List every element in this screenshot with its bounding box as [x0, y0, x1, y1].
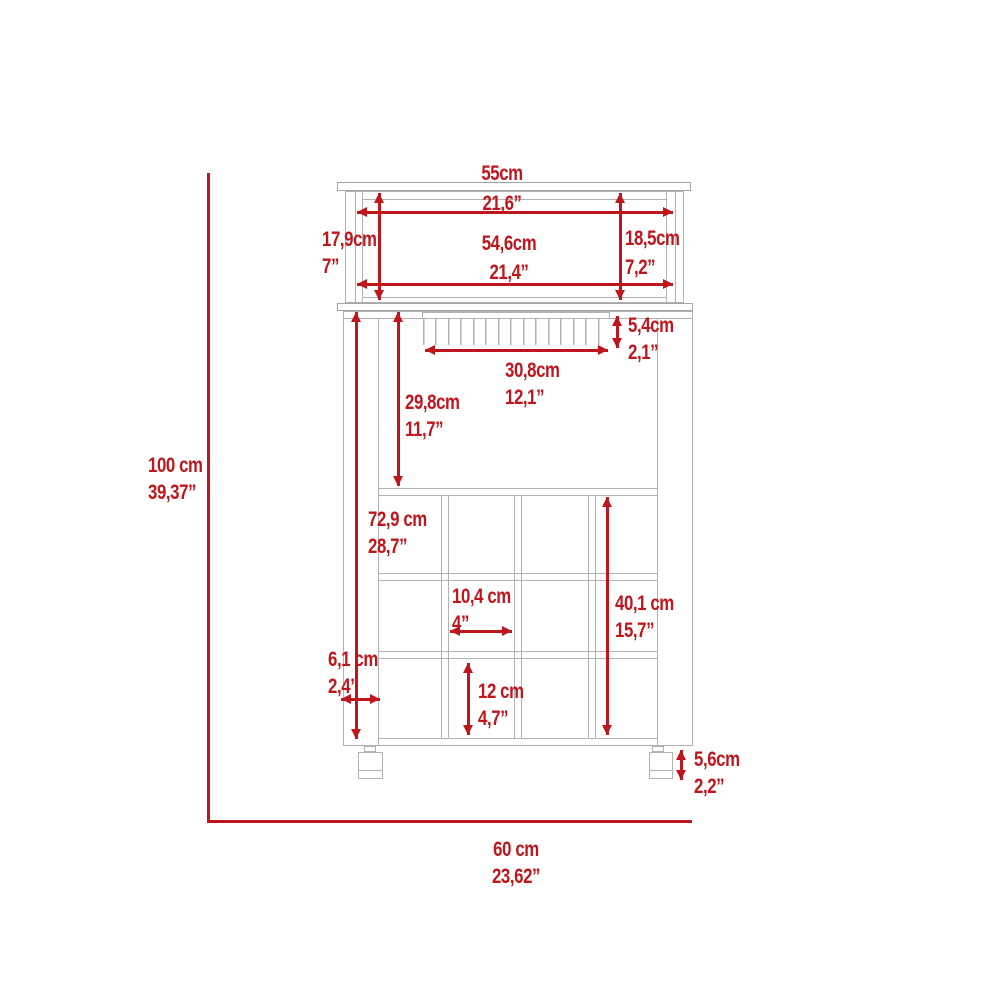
shelf-bottom-line — [378, 495, 657, 496]
cubby-row-sep-1a — [378, 573, 657, 574]
dim-arrow-open-shelf-height — [397, 312, 400, 486]
label-cabinet-height: 72,9 cm 28,7” — [368, 506, 427, 560]
cubby-col-sep-1a — [441, 495, 442, 739]
cabinet-right-wall-line — [657, 318, 658, 746]
cubby-row-sep-2a — [378, 651, 657, 652]
label-overall-width-cm: 60 cm — [492, 836, 540, 863]
cubby-col-sep-3a — [588, 495, 589, 739]
label-glass-rack-height-cm: 5,4cm — [628, 312, 674, 339]
left-caster-line — [358, 770, 383, 771]
label-top-width: 55cm 21,6” — [481, 159, 522, 219]
label-glass-rack-width-cm: 30,8cm — [505, 357, 560, 384]
left-caster-wheel — [358, 752, 383, 779]
label-wine-rack-height: 40,1 cm 15,7” — [615, 590, 674, 644]
label-overall-height: 100 cm 39,37” — [148, 452, 203, 506]
cubby-col-sep-1b — [448, 495, 449, 739]
label-hutch-right-in: 7,2” — [625, 253, 680, 282]
label-cabinet-height-in: 28,7” — [368, 533, 427, 560]
label-cubby-height: 12 cm 4,7” — [478, 678, 524, 732]
label-wine-rack-height-cm: 40,1 cm — [615, 590, 674, 617]
label-side-panel-width-in: 2,4” — [328, 673, 378, 700]
label-cubby-height-cm: 12 cm — [478, 678, 524, 705]
dim-arrow-cubby-height — [467, 663, 470, 735]
label-glass-rack-width: 30,8cm 12,1” — [505, 357, 560, 411]
label-cubby-height-in: 4,7” — [478, 705, 524, 732]
label-top-width-cm: 55cm — [481, 159, 522, 189]
glass-rack-slats — [423, 319, 609, 345]
label-side-panel-width-cm: 6,1 cm — [328, 646, 378, 673]
shelf-top-line — [378, 488, 657, 489]
label-top-width-in: 21,6” — [481, 189, 522, 219]
label-cubby-width-in: 4” — [452, 610, 511, 637]
overall-width-line — [207, 820, 692, 823]
label-open-shelf-height: 29,8cm 11,7” — [405, 389, 460, 443]
dim-arrow-glass-rack-width — [425, 349, 608, 352]
label-caster-height-in: 2,2” — [694, 773, 740, 800]
glass-rack-bar — [422, 312, 610, 319]
label-glass-rack-height-in: 2,1” — [628, 339, 674, 366]
right-caster-line — [649, 770, 673, 771]
label-open-shelf-height-in: 11,7” — [405, 416, 460, 443]
label-overall-width-in: 23,62” — [492, 863, 540, 890]
label-hutch-right-cm: 18,5cm — [625, 224, 680, 253]
dim-arrow-caster-height — [680, 750, 683, 780]
label-top-surface-in: 21,4” — [482, 258, 537, 287]
label-hutch-left-cm: 17,9cm — [322, 226, 377, 253]
label-hutch-right: 18,5cm 7,2” — [625, 224, 680, 282]
right-caster-wheel — [649, 752, 673, 779]
dim-arrow-hutch-left-height — [378, 193, 381, 300]
dim-arrow-glass-rack-height — [616, 316, 619, 348]
dim-arrow-wine-rack-height — [606, 497, 609, 735]
cubby-row-sep-2b — [378, 658, 657, 659]
label-hutch-left-in: 7” — [322, 253, 377, 280]
label-wine-rack-height-in: 15,7” — [615, 617, 674, 644]
dim-arrow-hutch-right-height — [619, 193, 622, 300]
label-caster-height: 5,6cm 2,2” — [694, 746, 740, 800]
label-glass-rack-height: 5,4cm 2,1” — [628, 312, 674, 366]
label-cubby-width-cm: 10,4 cm — [452, 583, 511, 610]
label-cabinet-height-cm: 72,9 cm — [368, 506, 427, 533]
label-overall-height-in: 39,37” — [148, 479, 203, 506]
hutch-bottom-board — [337, 303, 693, 311]
label-overall-width: 60 cm 23,62” — [492, 836, 540, 890]
dimension-diagram: 55cm 21,6” 54,6cm 21,4” 17,9cm 7” 18,5cm… — [0, 0, 1000, 1000]
label-cubby-width: 10,4 cm 4” — [452, 583, 511, 637]
label-side-panel-width: 6,1 cm 2,4” — [328, 646, 378, 700]
overall-height-line — [207, 173, 210, 823]
cabinet-bottom-board-line — [378, 738, 657, 739]
label-overall-height-cm: 100 cm — [148, 452, 203, 479]
label-top-surface-cm: 54,6cm — [482, 229, 537, 258]
label-glass-rack-width-in: 12,1” — [505, 384, 560, 411]
cubby-col-sep-3b — [595, 495, 596, 739]
label-hutch-left: 17,9cm 7” — [322, 226, 377, 280]
label-caster-height-cm: 5,6cm — [694, 746, 740, 773]
label-top-surface: 54,6cm 21,4” — [482, 229, 537, 287]
cubby-row-sep-1b — [378, 580, 657, 581]
label-open-shelf-height-cm: 29,8cm — [405, 389, 460, 416]
